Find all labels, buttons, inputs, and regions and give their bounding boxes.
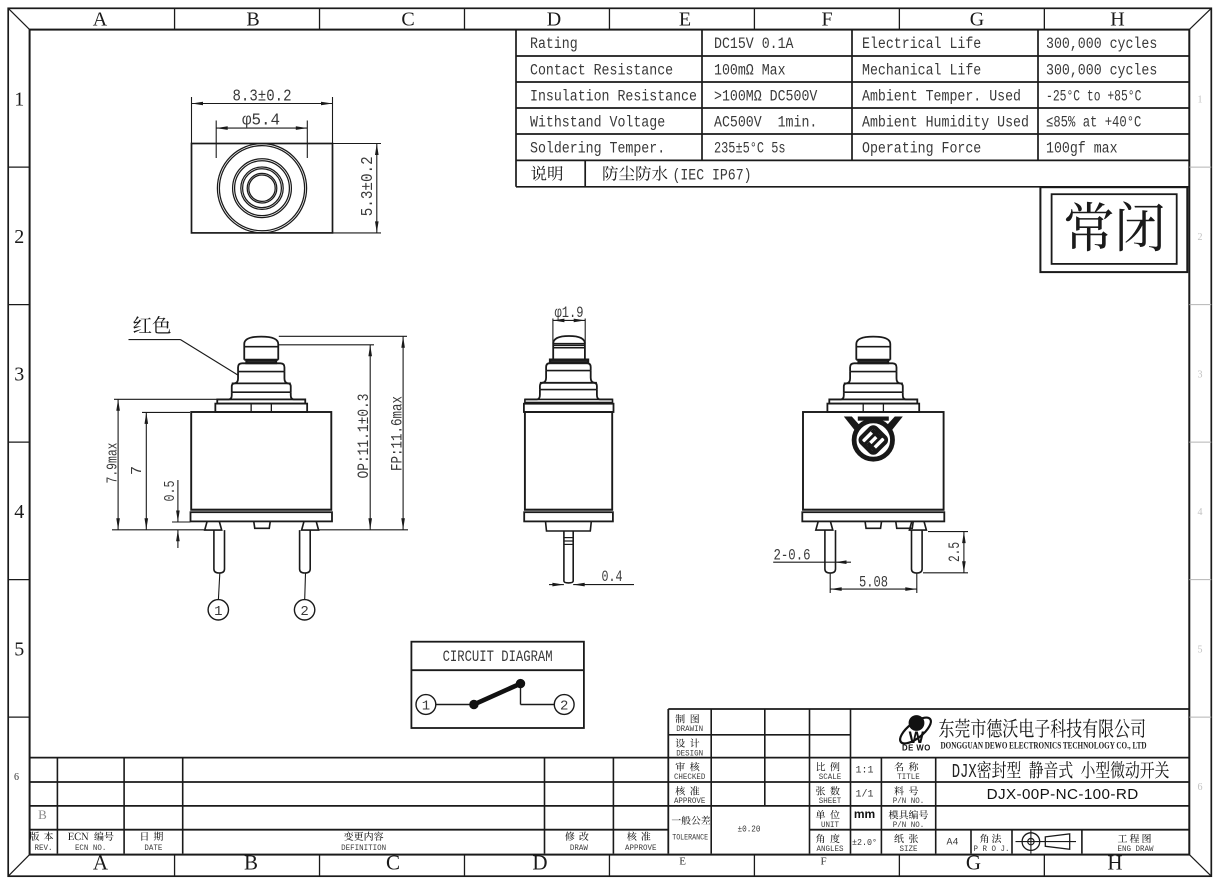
- svg-text:DONGGUAN DEWO ELECTRONICS TECH: DONGGUAN DEWO ELECTRONICS TECHNOLOGY CO.…: [941, 742, 1147, 752]
- svg-text:SHEET: SHEET: [819, 798, 842, 806]
- svg-text:H: H: [1107, 851, 1122, 875]
- svg-text:F: F: [821, 9, 832, 31]
- svg-text:1: 1: [422, 699, 430, 715]
- svg-text:TITLE: TITLE: [897, 774, 920, 782]
- svg-text:H: H: [1110, 9, 1124, 31]
- svg-text:D: D: [532, 851, 547, 875]
- svg-text:ENG DRAW: ENG DRAW: [1118, 846, 1154, 854]
- svg-text:1/1: 1/1: [855, 789, 873, 801]
- svg-text:E: E: [679, 9, 691, 31]
- svg-text:φ5.4: φ5.4: [242, 112, 280, 131]
- svg-text:≤85% at +40°C: ≤85% at +40°C: [1046, 113, 1141, 131]
- svg-text:UNIT: UNIT: [821, 822, 839, 830]
- svg-text:Soldering Temper.: Soldering Temper.: [530, 140, 665, 158]
- svg-text:2: 2: [14, 226, 24, 248]
- svg-text:5.3±0.2: 5.3±0.2: [358, 156, 377, 216]
- svg-text:B: B: [38, 807, 47, 822]
- svg-text:APPROVE: APPROVE: [674, 798, 706, 806]
- svg-text:CIRCUIT DIAGRAM: CIRCUIT DIAGRAM: [443, 648, 553, 666]
- svg-text:2.5: 2.5: [946, 542, 964, 562]
- svg-text:3: 3: [14, 363, 24, 385]
- svg-text:B: B: [244, 851, 258, 875]
- svg-text:±2.0°: ±2.0°: [852, 837, 877, 848]
- svg-text:0.5: 0.5: [162, 481, 179, 502]
- svg-text:DATE: DATE: [144, 845, 162, 853]
- svg-text:AC500V 1min.: AC500V 1min.: [714, 113, 817, 131]
- svg-text:6: 6: [1198, 782, 1203, 793]
- svg-text:300,000 cycles: 300,000 cycles: [1046, 35, 1157, 53]
- svg-text:7.9max: 7.9max: [104, 443, 121, 484]
- svg-text:1: 1: [14, 88, 24, 110]
- svg-text:G: G: [966, 851, 981, 875]
- svg-text:Contact Resistance: Contact Resistance: [530, 61, 673, 79]
- svg-text:Operating Force: Operating Force: [862, 140, 981, 158]
- svg-text:F: F: [820, 856, 826, 868]
- svg-text:Ambient Temper. Used: Ambient Temper. Used: [862, 87, 1021, 105]
- svg-text:(IEC IP67): (IEC IP67): [673, 166, 752, 184]
- svg-text:SIZE: SIZE: [900, 846, 918, 854]
- svg-text:REV.: REV.: [35, 845, 53, 853]
- svg-text:-25°C to +85°C: -25°C to +85°C: [1046, 87, 1141, 105]
- svg-text:DJX: DJX: [952, 761, 977, 783]
- svg-text:100mΩ Max: 100mΩ Max: [714, 61, 786, 79]
- svg-text:Mechanical Life: Mechanical Life: [862, 61, 981, 79]
- svg-text:300,000 cycles: 300,000 cycles: [1046, 61, 1157, 79]
- svg-text:±0.20: ±0.20: [738, 824, 761, 835]
- svg-text:2: 2: [300, 604, 308, 620]
- svg-text:ANGLES: ANGLES: [817, 846, 844, 854]
- svg-text:DESIGN: DESIGN: [676, 750, 703, 758]
- svg-text:0.4: 0.4: [602, 568, 623, 586]
- svg-text:6: 6: [14, 772, 19, 783]
- svg-text:1:1: 1:1: [855, 766, 873, 777]
- svg-text:FP:11.6max: FP:11.6max: [388, 396, 406, 471]
- svg-text:DE WO: DE WO: [902, 744, 931, 753]
- svg-text:235±5°C 5s: 235±5°C 5s: [714, 140, 786, 158]
- svg-text:C: C: [386, 851, 400, 875]
- svg-text:D: D: [547, 9, 561, 31]
- svg-text:Rating: Rating: [530, 35, 578, 53]
- svg-text:TOLERANCE: TOLERANCE: [672, 835, 708, 843]
- svg-text:DRAW: DRAW: [570, 845, 588, 853]
- svg-text:DRAWIN: DRAWIN: [676, 726, 703, 734]
- svg-text:7: 7: [129, 466, 146, 475]
- svg-text:P/N NO.: P/N NO.: [893, 798, 925, 806]
- svg-text:OP:11.1±0.3: OP:11.1±0.3: [355, 394, 373, 479]
- svg-text:C: C: [401, 9, 414, 31]
- svg-text:4: 4: [1198, 507, 1203, 518]
- svg-text:Ambient Humidity Used: Ambient Humidity Used: [862, 113, 1029, 131]
- svg-text:B: B: [246, 9, 259, 31]
- svg-text:5: 5: [1198, 644, 1203, 655]
- svg-text:ECN NO.: ECN NO.: [75, 845, 107, 853]
- svg-text:A: A: [93, 851, 109, 875]
- svg-text:1: 1: [214, 604, 222, 620]
- svg-text:CHECKED: CHECKED: [674, 774, 706, 782]
- svg-text:5: 5: [14, 638, 24, 660]
- svg-text:4: 4: [14, 501, 24, 523]
- svg-text:DC15V 0.1A: DC15V 0.1A: [714, 35, 794, 53]
- svg-text:Withstand Voltage: Withstand Voltage: [530, 113, 665, 131]
- svg-text:5.08: 5.08: [859, 573, 888, 591]
- svg-text:3: 3: [1198, 369, 1203, 380]
- svg-text:P R O J.: P R O J.: [974, 846, 1010, 854]
- svg-text:Electrical Life: Electrical Life: [862, 35, 981, 53]
- svg-text:2: 2: [560, 699, 568, 715]
- svg-text:G: G: [970, 9, 984, 31]
- svg-text:E: E: [679, 856, 686, 868]
- svg-text:P/N NO.: P/N NO.: [893, 822, 925, 830]
- svg-text:>100MΩ DC500V: >100MΩ DC500V: [714, 87, 818, 105]
- svg-text:8.3±0.2: 8.3±0.2: [233, 87, 292, 106]
- svg-text:SCALE: SCALE: [819, 774, 842, 782]
- svg-text:1: 1: [1198, 94, 1203, 105]
- svg-text:DJX-00P-NC-100-RD: DJX-00P-NC-100-RD: [987, 786, 1139, 803]
- svg-text:2: 2: [1198, 232, 1203, 243]
- svg-text:A: A: [93, 9, 108, 31]
- svg-text:A4: A4: [946, 838, 958, 849]
- svg-text:100gf max: 100gf max: [1046, 140, 1118, 158]
- svg-text:Insulation Resistance: Insulation Resistance: [530, 87, 697, 105]
- svg-text:mm: mm: [854, 807, 875, 821]
- svg-text:φ1.9: φ1.9: [555, 304, 584, 322]
- svg-text:APPROVE: APPROVE: [625, 845, 657, 853]
- svg-text:DEFINITION: DEFINITION: [341, 845, 386, 853]
